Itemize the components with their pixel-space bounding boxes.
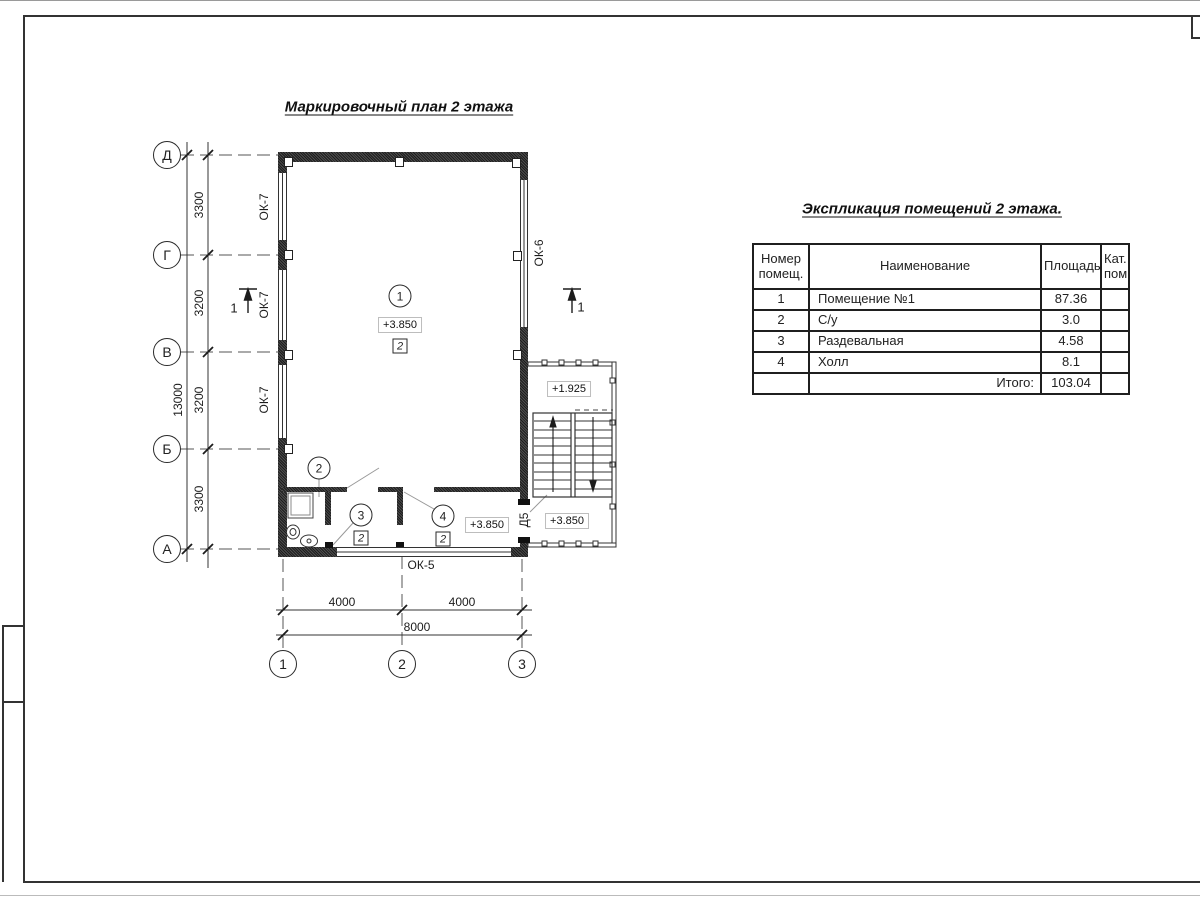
axis-lines-bottom — [283, 556, 522, 648]
room-circle-1: 1 — [389, 285, 412, 308]
cell-name: Раздевальная — [809, 331, 1041, 352]
axis-bubble-d: Д — [153, 141, 181, 169]
window-ok7-bot — [278, 365, 287, 438]
table-row: 3 Раздевальная 4.58 — [753, 331, 1129, 352]
elevation-stair-lower: +3.850 — [545, 513, 589, 529]
window-label-ok6: ОК-6 — [532, 240, 546, 267]
window-label-ok7-top: ОК-7 — [257, 194, 271, 221]
cell-cat — [1101, 310, 1129, 331]
axis-bubble-a: А — [153, 535, 181, 563]
cat-square-room1: 2 — [393, 339, 408, 354]
cell-area: 8.1 — [1041, 352, 1101, 373]
cell-empty — [753, 373, 809, 394]
cell-name: С/у — [809, 310, 1041, 331]
door-jamb-room3 — [325, 542, 333, 548]
shower-tray — [288, 493, 313, 518]
room-circle-4: 4 — [432, 505, 455, 528]
cell-num: 4 — [753, 352, 809, 373]
elevation-stair-landing: +1.925 — [547, 381, 591, 397]
partition-h-1 — [282, 487, 347, 492]
wall-bottom-left — [278, 547, 337, 557]
sink — [301, 535, 318, 547]
stair-up-arrow — [550, 417, 556, 492]
partition-v-1 — [325, 492, 331, 525]
elevation-room1: +3.850 — [378, 317, 422, 333]
header-cat: Кат. пом. — [1101, 244, 1129, 289]
vent-notch — [284, 350, 293, 360]
room-circle-2: 2 — [308, 457, 331, 480]
table-row: 4 Холл 8.1 — [753, 352, 1129, 373]
cell-num: 3 — [753, 331, 809, 352]
vent-notch — [284, 444, 293, 454]
table-total-row: Итого: 103.04 — [753, 373, 1129, 394]
cell-cat — [1101, 289, 1129, 310]
cell-name: Помещение №1 — [809, 289, 1041, 310]
window-label-ok7-bot: ОК-7 — [257, 387, 271, 414]
axis-bubble-v: В — [153, 338, 181, 366]
door-label-d5: Д5 — [517, 513, 531, 528]
window-label-ok7-mid: ОК-7 — [257, 292, 271, 319]
vent-notch — [284, 157, 293, 167]
dim-label-13000: 13000 — [171, 383, 185, 416]
header-area: Площадь — [1041, 244, 1101, 289]
dim-label-4000-right: 4000 — [449, 595, 476, 609]
staircase — [533, 413, 612, 497]
vent-notch — [513, 350, 522, 360]
cat-square-room4: 2 — [436, 532, 451, 547]
vent-notch — [395, 157, 404, 167]
axis-bubble-2: 2 — [388, 650, 416, 678]
window-ok7-top — [278, 173, 287, 240]
axis-bubble-b: Б — [153, 435, 181, 463]
dim-label-3200-lower: 3200 — [192, 387, 206, 414]
dim-label-3200-upper: 3200 — [192, 290, 206, 317]
axis-bubble-g: Г — [153, 241, 181, 269]
wall-left-lower — [278, 438, 287, 557]
axis-bubble-1: 1 — [269, 650, 297, 678]
cell-cat — [1101, 352, 1129, 373]
wall-right-bottom — [520, 543, 528, 557]
wall-right-pier-top — [520, 152, 528, 180]
cell-area: 4.58 — [1041, 331, 1101, 352]
axis-bubble-3: 3 — [508, 650, 536, 678]
dim-label-4000-left: 4000 — [329, 595, 356, 609]
drawing-sheet: Маркировочный план 2 этажа Экспликация п… — [0, 0, 1200, 900]
door-jamb-d5-top — [518, 499, 530, 505]
cell-area: 87.36 — [1041, 289, 1101, 310]
window-label-ok5: ОК-5 — [408, 558, 435, 572]
vent-notch — [513, 251, 522, 261]
vent-notch — [284, 250, 293, 260]
room-circle-3: 3 — [350, 504, 373, 527]
total-value: 103.04 — [1041, 373, 1101, 394]
dim-label-3300-bottom: 3300 — [192, 486, 206, 513]
cell-area: 3.0 — [1041, 310, 1101, 331]
table-row: 1 Помещение №1 87.36 — [753, 289, 1129, 310]
cell-empty — [1101, 373, 1129, 394]
dim-label-8000: 8000 — [404, 620, 431, 634]
header-name: Наименование — [809, 244, 1041, 289]
cell-cat — [1101, 331, 1129, 352]
window-ok7-mid — [278, 270, 287, 340]
section-mark-left-number: 1 — [230, 301, 237, 316]
cell-num: 2 — [753, 310, 809, 331]
table-header-row: Номер помещ. Наименование Площадь Кат. п… — [753, 244, 1129, 289]
header-number: Номер помещ. — [753, 244, 809, 289]
section-mark-left-arrow — [239, 289, 257, 313]
cell-name: Холл — [809, 352, 1041, 373]
window-ok5 — [337, 547, 511, 557]
section-mark-right-number: 1 — [577, 300, 584, 315]
total-label: Итого: — [809, 373, 1041, 394]
table-row: 2 С/у 3.0 — [753, 310, 1129, 331]
cat-square-room3: 2 — [354, 531, 369, 546]
dimension-lines — [187, 142, 532, 635]
explication-table: Номер помещ. Наименование Площадь Кат. п… — [752, 243, 1130, 395]
vent-notch — [512, 158, 521, 168]
cell-num: 1 — [753, 289, 809, 310]
elevation-hall: +3.850 — [465, 517, 509, 533]
dim-label-3300-top: 3300 — [192, 192, 206, 219]
partition-v-2 — [397, 491, 403, 525]
partition-h-3 — [434, 487, 523, 492]
dimension-ticks — [182, 150, 527, 640]
